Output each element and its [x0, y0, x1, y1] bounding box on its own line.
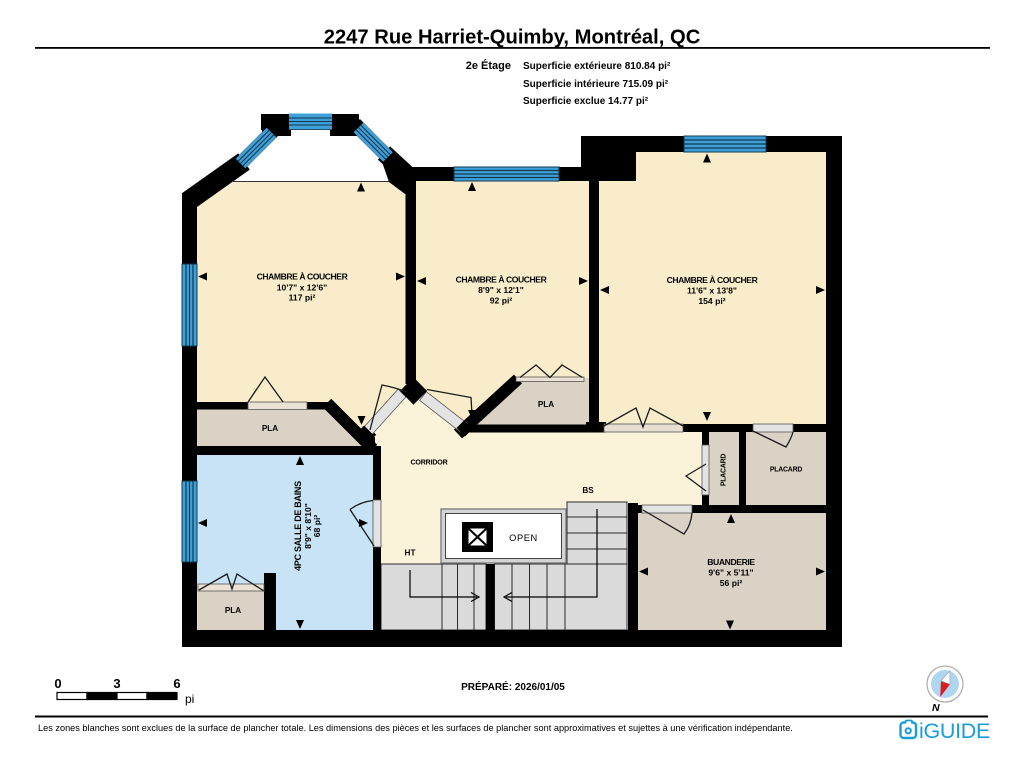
svg-text:Superficie extérieure 810.84 p: Superficie extérieure 810.84 pi² [523, 61, 671, 72]
svg-text:PLA: PLA [262, 424, 278, 433]
svg-text:PLA: PLA [225, 606, 241, 615]
svg-text:2e Étage: 2e Étage [466, 59, 511, 72]
svg-text:10'7" x 12'6": 10'7" x 12'6" [277, 283, 327, 293]
svg-text:117 pi²: 117 pi² [289, 293, 316, 303]
svg-text:N: N [932, 702, 940, 714]
svg-text:8'9" x 12'1": 8'9" x 12'1" [478, 285, 524, 295]
svg-text:154 pi²: 154 pi² [698, 296, 725, 306]
svg-text:BUANDERIE: BUANDERIE [707, 557, 755, 567]
svg-text:0: 0 [54, 676, 61, 691]
svg-text:3: 3 [113, 676, 120, 691]
svg-text:CHAMBRE À COUCHER: CHAMBRE À COUCHER [667, 275, 759, 285]
svg-text:11'6" x 13'8": 11'6" x 13'8" [687, 286, 737, 296]
svg-text:Les zones blanches sont exclue: Les zones blanches sont exclues de la su… [38, 723, 793, 733]
svg-text:2247 Rue Harriet-Quimby, Montr: 2247 Rue Harriet-Quimby, Montréal, QC [324, 27, 701, 49]
svg-text:9'6" x 5'11": 9'6" x 5'11" [708, 568, 753, 578]
svg-text:OPEN: OPEN [509, 533, 538, 543]
svg-text:iGUIDE: iGUIDE [919, 719, 990, 743]
svg-text:BS: BS [582, 486, 594, 495]
svg-text:56 pi²: 56 pi² [720, 578, 743, 588]
svg-text:PLACARD: PLACARD [721, 454, 728, 487]
svg-text:CORRIDOR: CORRIDOR [410, 459, 447, 467]
svg-text:HT: HT [405, 549, 416, 558]
svg-text:Superficie intérieure 715.09 p: Superficie intérieure 715.09 pi² [523, 79, 669, 90]
svg-text:92 pi²: 92 pi² [490, 296, 513, 306]
svg-text:PRÉPARÉ: 2026/01/05: PRÉPARÉ: 2026/01/05 [461, 680, 565, 693]
svg-text:CHAMBRE À COUCHER: CHAMBRE À COUCHER [456, 275, 548, 285]
svg-text:PLACARD: PLACARD [770, 467, 803, 474]
svg-text:6: 6 [173, 676, 180, 691]
svg-text:PLA: PLA [538, 400, 554, 409]
svg-text:68 pi²: 68 pi² [312, 515, 322, 538]
svg-text:4PC SALLE DE BAINS: 4PC SALLE DE BAINS [293, 481, 303, 571]
svg-text:Superficie exclue 14.77 pi²: Superficie exclue 14.77 pi² [523, 96, 649, 107]
svg-text:pi: pi [185, 692, 194, 706]
svg-text:CHAMBRE À COUCHER: CHAMBRE À COUCHER [257, 272, 349, 282]
